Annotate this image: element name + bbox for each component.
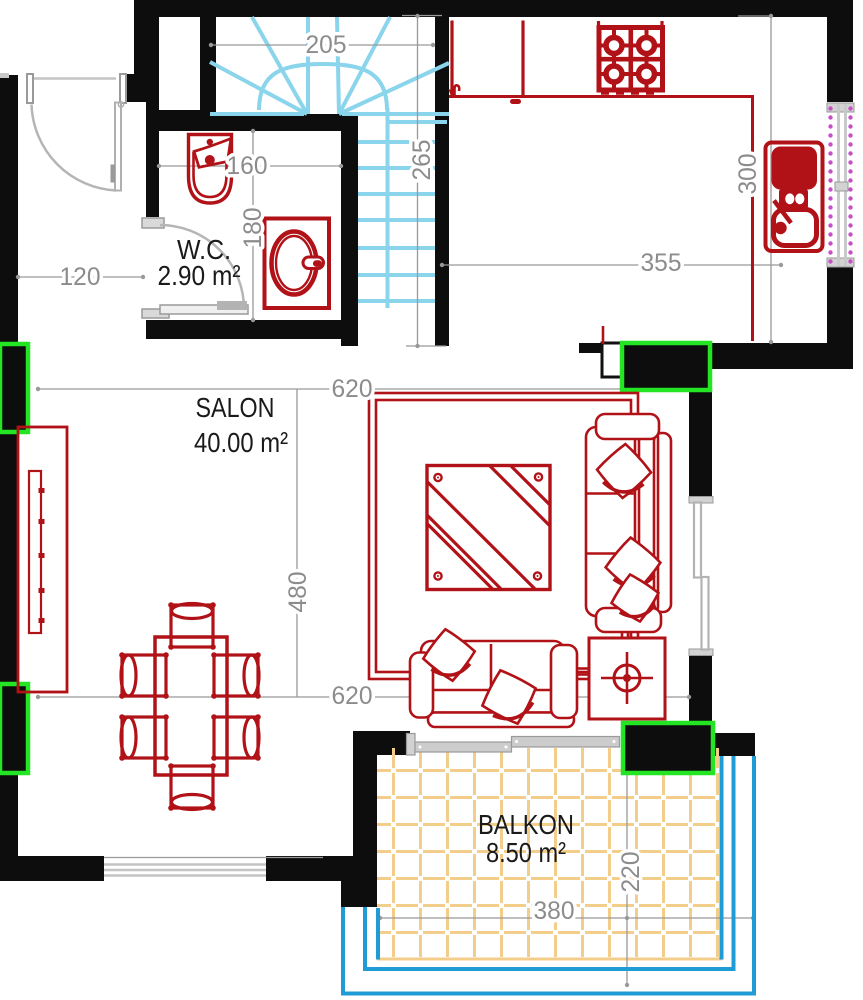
- svg-text:180: 180: [239, 208, 267, 249]
- svg-text:40.00 m²: 40.00 m²: [194, 427, 288, 458]
- svg-text:265: 265: [408, 140, 436, 181]
- svg-text:380: 380: [534, 897, 575, 925]
- svg-text:220: 220: [617, 852, 645, 893]
- svg-text:300: 300: [734, 154, 762, 195]
- svg-text:8.50 m²: 8.50 m²: [486, 837, 566, 868]
- svg-text:BALKON: BALKON: [478, 809, 574, 840]
- svg-text:355: 355: [641, 249, 682, 277]
- svg-text:160: 160: [227, 152, 268, 180]
- svg-text:120: 120: [60, 263, 101, 291]
- svg-text:SALON: SALON: [196, 392, 275, 423]
- svg-text:205: 205: [306, 31, 347, 59]
- svg-text:620: 620: [332, 375, 373, 403]
- svg-text:620: 620: [332, 682, 373, 710]
- svg-text:480: 480: [284, 572, 312, 613]
- svg-text:2.90 m²: 2.90 m²: [158, 260, 241, 291]
